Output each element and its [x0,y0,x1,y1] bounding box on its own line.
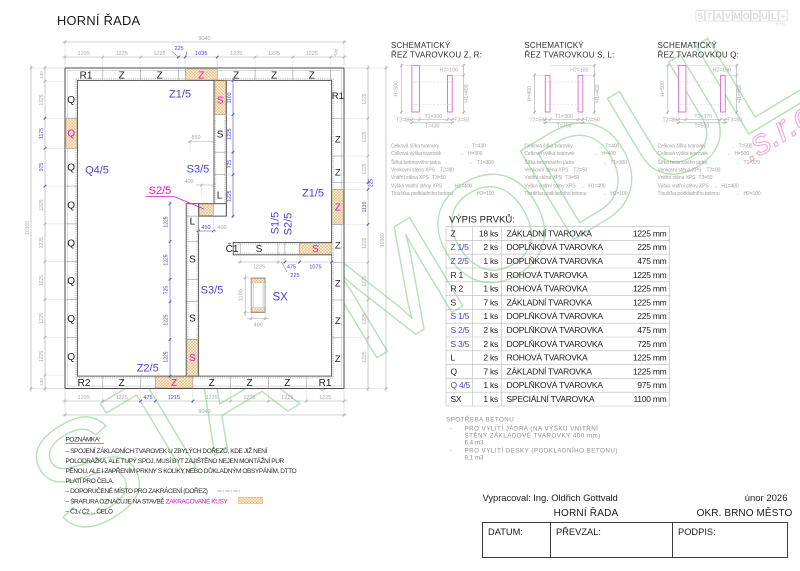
svg-text:Venkovní stěna XPS: Venkovní stěna XPS [524,168,569,174]
svg-text:H2=100: H2=100 [610,191,627,197]
svg-text:7 ks: 7 ks [483,366,498,376]
svg-text:R 1: R 1 [451,270,464,280]
svg-text:225: 225 [174,46,183,52]
svg-text:..: .. [448,184,451,190]
svg-text:DOPLŇKOVÁ TVAROVKA: DOPLŇKOVÁ TVAROVKA [507,242,604,252]
svg-text:H=400: H=400 [527,86,533,102]
svg-text:Q: Q [67,163,75,174]
svg-text:1225 mm: 1225 mm [633,284,667,294]
svg-text:T1=300: T1=300 [610,160,627,166]
svg-text:430: 430 [39,378,44,386]
svg-text:S: S [189,314,196,325]
svg-text:SCHEMATICKÝ: SCHEMATICKÝ [524,41,584,50]
svg-text:1225 mm: 1225 mm [633,353,667,363]
svg-text:S 1/5: S 1/5 [451,311,470,321]
svg-text:..: .. [470,160,473,166]
svg-text:Q: Q [67,352,75,363]
svg-text:ŘEZ TVAROVKOU Z, R:: ŘEZ TVAROVKOU Z, R: [391,51,482,60]
svg-text:Z: Z [119,378,125,389]
svg-text:1 ks: 1 ks [483,311,498,321]
svg-text:Q: Q [67,129,75,140]
svg-text:Šířka betonového jádra: Šířka betonového jádra [391,159,441,166]
svg-text:T1=370: T1=370 [694,114,712,120]
svg-text:475: 475 [287,265,296,271]
svg-text:Celková šířka tvarovky: Celková šířka tvarovky [524,144,573,150]
svg-text:Č1: Č1 [226,242,239,255]
svg-text:Z: Z [271,71,277,82]
svg-text:V: V [725,11,731,21]
svg-text:..: .. [581,184,584,190]
svg-text:..: .. [594,151,597,157]
svg-text:..: .. [598,144,601,150]
svg-text:H2=100: H2=100 [570,68,588,74]
svg-text:1225 mm: 1225 mm [633,228,667,238]
svg-text:Z: Z [171,378,177,389]
svg-text:475: 475 [143,395,152,401]
svg-text:1225 mm: 1225 mm [633,297,667,307]
svg-text:S: S [256,244,263,255]
svg-text:H1=400: H1=400 [595,84,601,102]
svg-text:1225: 1225 [164,216,170,227]
svg-text:SCHEMATICKÝ: SCHEMATICKÝ [658,41,718,50]
svg-text:T: T [707,11,713,21]
svg-text:S 3/5: S 3/5 [451,339,470,349]
svg-text:1225: 1225 [116,51,128,57]
svg-text:9040: 9040 [198,409,210,415]
svg-text:S: S [189,353,196,364]
svg-text:T3=50: T3=50 [585,117,600,123]
svg-text:Šířka betonového jádra: Šířka betonového jádra [658,159,708,166]
svg-text:HORNÍ ŘADA: HORNÍ ŘADA [554,506,619,519]
svg-text:Výška vnitřní stěny XPS: Výška vnitřní stěny XPS [524,184,576,190]
svg-text:1225: 1225 [253,265,265,271]
svg-text:T=430: T=430 [472,144,486,150]
svg-text:Q: Q [67,238,75,249]
svg-text:Výška vnitřní stěny XPS: Výška vnitřní stěny XPS [658,184,710,190]
svg-text:DOPLŇKOVÁ TVAROVKA: DOPLŇKOVÁ TVAROVKA [507,311,604,321]
svg-text:VÝPIS PRVKŮ:: VÝPIS PRVKŮ: [449,214,515,226]
svg-text:R1: R1 [319,378,332,389]
svg-text:1225: 1225 [362,131,368,142]
svg-text:..: .. [465,144,468,150]
svg-text:..: .. [715,184,718,190]
svg-text:PLATÍ PRO ČELA.: PLATÍ PRO ČELA. [66,476,115,485]
svg-text:1225: 1225 [39,199,45,210]
svg-text:T1=300: T1=300 [477,160,494,166]
svg-text:T2=80: T2=80 [662,117,677,123]
svg-text:– ŠRAFURA OZNAČUJE NA STAVBĚ Z: – ŠRAFURA OZNAČUJE NA STAVBĚ ZAKRACOVANÉ… [66,496,229,505]
svg-text:M: M [733,11,740,21]
svg-text:Z 1/5: Z 1/5 [451,242,470,252]
svg-text:ZÁKLADNÍ TVAROVKA: ZÁKLADNÍ TVAROVKA [507,366,593,376]
svg-text:T1=370: T1=370 [744,160,761,166]
svg-text:3 ks: 3 ks [483,270,498,280]
svg-text:– Č1 / Č2 ... ČELO: – Č1 / Č2 ... ČELO [66,506,113,515]
svg-text:H2=100: H2=100 [477,191,494,197]
svg-text:1225: 1225 [78,395,90,401]
svg-text:Venkovní stěna XPS: Venkovní stěna XPS [391,168,436,174]
svg-text:1225: 1225 [362,238,368,249]
svg-text:H2=100: H2=100 [744,191,761,197]
svg-text:1225 mm: 1225 mm [633,270,667,280]
svg-text:1225: 1225 [39,94,45,105]
svg-text:T3=50: T3=50 [432,175,446,181]
svg-text:H1=400: H1=400 [722,184,739,190]
svg-text:R 2: R 2 [451,284,464,294]
svg-text:1130: 1130 [362,201,368,212]
svg-text:D: D [752,11,758,21]
svg-text:1225: 1225 [116,395,128,401]
svg-text:ROHOVÁ TVAROVKA: ROHOVÁ TVAROVKA [507,353,589,363]
svg-text:225 mm: 225 mm [637,311,666,321]
svg-text:OKR. BRNO MĚSTO: OKR. BRNO MĚSTO [697,506,793,519]
svg-text:1225: 1225 [362,351,368,362]
svg-text:6,4 m3: 6,4 m3 [465,440,484,447]
svg-text:SPECIÁLNÍ TVAROVKA: SPECIÁLNÍ TVAROVKA [507,394,595,404]
svg-text:400: 400 [217,225,226,231]
svg-text:A: A [716,11,722,21]
svg-text:Šířka betonového jádra: Šířka betonového jádra [524,159,574,166]
svg-text:Výška vnitřní stěny XPS: Výška vnitřní stěny XPS [391,184,443,190]
svg-text:H=500: H=500 [660,81,666,97]
svg-text:Z: Z [198,71,204,82]
svg-text:1225: 1225 [78,51,90,57]
svg-text:ZÁKLADNÍ TVAROVKA: ZÁKLADNÍ TVAROVKA [507,228,593,238]
svg-text:H=500: H=500 [735,151,750,157]
svg-text:1225: 1225 [362,163,368,174]
svg-text:S3/5: S3/5 [187,164,210,176]
svg-text:ŘEZ TVAROVKOU S, L:: ŘEZ TVAROVKOU S, L: [524,51,614,60]
svg-text:T=500: T=500 [739,144,753,150]
svg-text:R2: R2 [78,378,91,389]
svg-text:Z: Z [209,378,215,389]
svg-text:T2=80: T2=80 [440,168,454,174]
svg-text:SX: SX [273,292,289,304]
svg-text:Z: Z [284,378,290,389]
svg-text:H1=400: H1=400 [464,84,470,102]
svg-text:PŘEVZAL:: PŘEVZAL: [556,527,601,537]
svg-text:Z: Z [309,71,315,82]
svg-text:2 ks: 2 ks [483,242,498,252]
svg-text:Q: Q [451,366,458,376]
svg-text:T2=80: T2=80 [707,168,721,174]
svg-text:1175: 1175 [39,128,45,139]
svg-text:1225: 1225 [227,190,233,201]
svg-text:S3/5: S3/5 [201,285,224,297]
svg-text:1225 mm: 1225 mm [633,366,667,376]
svg-text:DOPLŇKOVÁ TVAROVKA: DOPLŇKOVÁ TVAROVKA [507,380,604,390]
svg-text:S: S [217,130,224,141]
svg-text:1225: 1225 [268,51,280,57]
svg-text:S2/5: S2/5 [149,185,172,197]
svg-text:O: O [743,11,750,21]
svg-text:ŘEZ TVAROVKOU Q:: ŘEZ TVAROVKOU Q: [658,51,740,60]
svg-text:H=500: H=500 [468,151,483,157]
svg-text:1 ks: 1 ks [483,380,498,390]
svg-text:1225: 1225 [230,51,242,57]
svg-text:..: .. [470,191,473,197]
svg-text:T1=300: T1=300 [555,114,573,120]
svg-text:ZÁKLADNÍ TVAROVKA: ZÁKLADNÍ TVAROVKA [507,297,593,307]
svg-text:S1/5: S1/5 [270,212,282,235]
svg-text:18 ks: 18 ks [479,228,498,238]
svg-text:T=500: T=500 [694,124,709,130]
svg-text:DOPLŇKOVÁ TVAROVKA: DOPLŇKOVÁ TVAROVKA [507,256,604,266]
svg-text:Q: Q [67,314,75,325]
svg-text:Z: Z [335,279,341,290]
svg-text:PRO VYLITÍ JÁDRA (NA VÝŠKU: PRO VYLITÍ JÁDRA (NA VÝŠKU VNITŘNÍ [465,425,599,433]
svg-text:L: L [451,353,456,363]
svg-text:1 ks: 1 ks [483,256,498,266]
svg-text:1225: 1225 [39,275,45,286]
svg-text:L: L [190,217,196,228]
svg-text:Z: Z [335,316,341,327]
svg-text:1 ks: 1 ks [483,394,498,404]
svg-text:T2=50: T2=50 [529,117,544,123]
svg-text:1225: 1225 [362,313,368,324]
svg-text:T1=300: T1=300 [425,114,443,120]
svg-text:ROHOVÁ TVAROVKA: ROHOVÁ TVAROVKA [507,270,589,280]
svg-text:L: L [217,191,223,202]
svg-text:S: S [451,297,457,307]
svg-text:S 2/5: S 2/5 [451,325,470,335]
svg-text:1225: 1225 [39,351,45,362]
svg-text:T3=50: T3=50 [454,117,469,123]
svg-text:H1=400: H1=400 [455,184,472,190]
svg-text:T=400: T=400 [557,124,572,130]
svg-text:Vnitřní stěna XPS: Vnitřní stěna XPS [658,175,697,181]
svg-text:225 mm: 225 mm [637,242,666,252]
svg-text:1225: 1225 [281,395,293,401]
svg-text:PRO VYLITÍ DESKY (PODKLADNÍHO: PRO VYLITÍ DESKY (PODKLADNÍHO BETONU) [465,448,618,455]
svg-text:Z: Z [335,135,341,146]
svg-text:SCHEMATICKÝ: SCHEMATICKÝ [391,41,451,50]
svg-text:1 ks: 1 ks [483,284,498,294]
svg-text:2 ks: 2 ks [483,339,498,349]
svg-text:T3=50: T3=50 [727,117,742,123]
svg-text:S: S [697,11,703,21]
svg-text:ROHOVÁ TVAROVKA: ROHOVÁ TVAROVKA [507,284,589,294]
svg-text:1225: 1225 [164,254,170,265]
svg-text:1225: 1225 [164,351,170,362]
svg-text:2 ks: 2 ks [483,325,498,335]
svg-text:U: U [762,11,768,21]
svg-text:H1=400: H1=400 [588,184,605,190]
svg-text:975: 975 [39,163,45,172]
svg-text:7 ks: 7 ks [483,297,498,307]
svg-text:9,1 m3: 9,1 m3 [465,455,484,462]
svg-text:T2=80: T2=80 [396,117,411,123]
svg-text:+: + [781,11,786,21]
svg-text:..: .. [737,160,740,166]
svg-text:SPOTŘEBA BETONU :: SPOTŘEBA BETONU : [446,416,519,424]
svg-text:Q 4/5: Q 4/5 [451,380,471,390]
svg-text:Venkovní stěna XPS: Venkovní stěna XPS [658,168,703,174]
svg-text:Vnitřní stěna XPS: Vnitřní stěna XPS [524,175,563,181]
svg-text:475 mm: 475 mm [637,325,666,335]
svg-text:430: 430 [39,71,44,79]
svg-text:Z: Z [335,241,341,252]
svg-text:Q: Q [67,95,75,106]
svg-text:1225: 1225 [39,237,45,248]
svg-text:Z: Z [335,168,341,179]
svg-text:Vnitřní stěna XPS: Vnitřní stěna XPS [391,175,430,181]
svg-text:Z: Z [156,71,162,82]
svg-text:Z: Z [246,378,252,389]
svg-text:H2=100: H2=100 [440,68,458,74]
svg-text:T3=50: T3=50 [565,175,579,181]
svg-text:..: .. [461,151,464,157]
svg-text:R1: R1 [332,91,344,102]
svg-text:Tloušťka podkladního betonu: Tloušťka podkladního betonu [658,191,720,197]
svg-text:S2/5: S2/5 [283,213,295,236]
svg-text:450: 450 [201,225,210,231]
svg-text:SX: SX [451,394,462,404]
svg-text:T3=50: T3=50 [699,175,713,181]
svg-text:1100 mm: 1100 mm [633,394,666,404]
svg-text:..: .. [603,191,606,197]
svg-text:..: .. [737,191,740,197]
svg-text:POLODRÁŽKA, ALE TUPÝ SPOJ, MUS: POLODRÁŽKA, ALE TUPÝ SPOJ, MUSÍ BÝT ZAJI… [66,456,285,465]
svg-text:T=400: T=400 [605,144,619,150]
svg-text:H=500: H=500 [394,81,400,97]
svg-text:1225: 1225 [319,395,331,401]
svg-text:-: - [450,448,452,455]
svg-text:1100: 1100 [227,92,233,103]
svg-text:– DOPORUČENÉ MÍSTO PRO ZAKRÁCE: – DOPORUČENÉ MÍSTO PRO ZAKRÁCENÍ (DOŘEZ) [66,486,208,495]
svg-text:STĚNY ZÁKLADOVÉ TVAROVKY: STĚNY ZÁKLADOVÉ TVAROVKY 400 mm) [465,432,601,440]
svg-text:Vypracoval: Ing. Oldřich Gottv: Vypracoval: Ing. Oldřich Gottvald [483,493,618,504]
svg-text:725: 725 [164,286,170,295]
svg-text:H1=400: H1=400 [737,84,743,102]
svg-text:850: 850 [191,135,200,141]
svg-text:Q4/5: Q4/5 [85,165,109,177]
svg-text:Z: Z [119,71,125,82]
svg-text:400: 400 [184,179,193,185]
svg-text:Tloušťka podkladního betonu: Tloušťka podkladního betonu [391,191,453,197]
svg-text:..: .. [732,144,735,150]
svg-text:S: S [189,255,196,266]
svg-text:HORNÍ ŘADA: HORNÍ ŘADA [57,13,141,28]
svg-text:225: 225 [369,179,375,188]
svg-text:Celková výška tvarovek: Celková výška tvarovek [391,151,442,157]
svg-text:PĚNOU, ALE I ZAPŘENÍM PRKNY S: PĚNOU, ALE I ZAPŘENÍM PRKNY S KOLÍKY NEB… [66,466,297,475]
svg-text:Celková šířka tvarovky: Celková šířka tvarovky [658,144,707,150]
svg-text:1225: 1225 [206,395,218,401]
svg-text:POZNÁMKA:: POZNÁMKA: [66,435,101,444]
svg-text:..: .. [728,151,731,157]
svg-text:725 mm: 725 mm [637,339,666,349]
svg-text:T2=50: T2=50 [573,168,587,174]
svg-text:1225: 1225 [39,313,45,324]
svg-text:Celková výška tvarovek: Celková výška tvarovek [658,151,709,157]
svg-text:H2=100: H2=100 [713,68,731,74]
svg-text:9040: 9040 [198,36,210,42]
svg-text:-: - [450,426,452,433]
svg-text:1225: 1225 [362,275,368,286]
svg-text:Q: Q [67,201,75,212]
svg-text:S: S [217,96,224,107]
svg-text:Z2/5: Z2/5 [137,363,159,375]
svg-text:H=400: H=400 [601,151,616,157]
svg-text:1225: 1225 [306,51,318,57]
svg-text:– SPOJENÍ ZÁKLADNÍCH TVAROVEK: – SPOJENÍ ZÁKLADNÍCH TVAROVEK U ZBYLÝCH … [66,446,268,455]
svg-text:Q: Q [67,276,75,287]
svg-text:1215: 1215 [168,395,180,401]
svg-text:2 ks: 2 ks [483,353,498,363]
svg-text:R1: R1 [80,71,93,82]
svg-text:PODPIS:: PODPIS: [678,527,716,537]
svg-text:Celková šířka tvarovky: Celková šířka tvarovky [391,144,440,150]
svg-text:Z 2/5: Z 2/5 [451,256,470,266]
svg-text:Z: Z [335,354,341,365]
svg-text:225: 225 [290,273,299,279]
svg-text:400: 400 [254,323,263,329]
svg-text:Z1/5: Z1/5 [302,188,324,200]
svg-text:..: .. [603,160,606,166]
svg-text:725: 725 [227,160,233,169]
svg-text:1075: 1075 [309,265,321,271]
svg-text:10360: 10360 [380,233,386,247]
svg-text:1225: 1225 [227,128,233,139]
svg-text:1100: 1100 [239,289,245,301]
svg-text:1035: 1035 [195,51,207,57]
svg-text:s.r.o.: s.r.o. [776,22,786,27]
svg-text:únor 2026: únor 2026 [745,493,788,504]
svg-text:DOPLŇKOVÁ TVAROVKA: DOPLŇKOVÁ TVAROVKA [507,339,604,349]
svg-text:10360: 10360 [25,221,31,235]
svg-text:DOPLŇKOVÁ TVAROVKA: DOPLŇKOVÁ TVAROVKA [507,325,604,335]
svg-text:1225: 1225 [362,93,368,104]
svg-text:DATUM:: DATUM: [488,527,523,537]
svg-text:S: S [312,244,319,255]
svg-text:1225: 1225 [243,395,255,401]
svg-text:L: L [771,11,776,21]
svg-text:Tloušťka podkladního betonu: Tloušťka podkladního betonu [524,191,586,197]
svg-text:975 mm: 975 mm [637,380,666,390]
svg-text:T=430: T=430 [425,124,440,130]
svg-text:1225: 1225 [153,51,165,57]
svg-text:1225: 1225 [164,314,170,325]
svg-text:Z: Z [335,203,341,214]
svg-text:Z: Z [451,228,456,238]
svg-text:475 mm: 475 mm [637,256,666,266]
svg-text:Z1/5: Z1/5 [169,89,191,101]
svg-text:Celková výška tvarovek: Celková výška tvarovek [524,151,575,157]
